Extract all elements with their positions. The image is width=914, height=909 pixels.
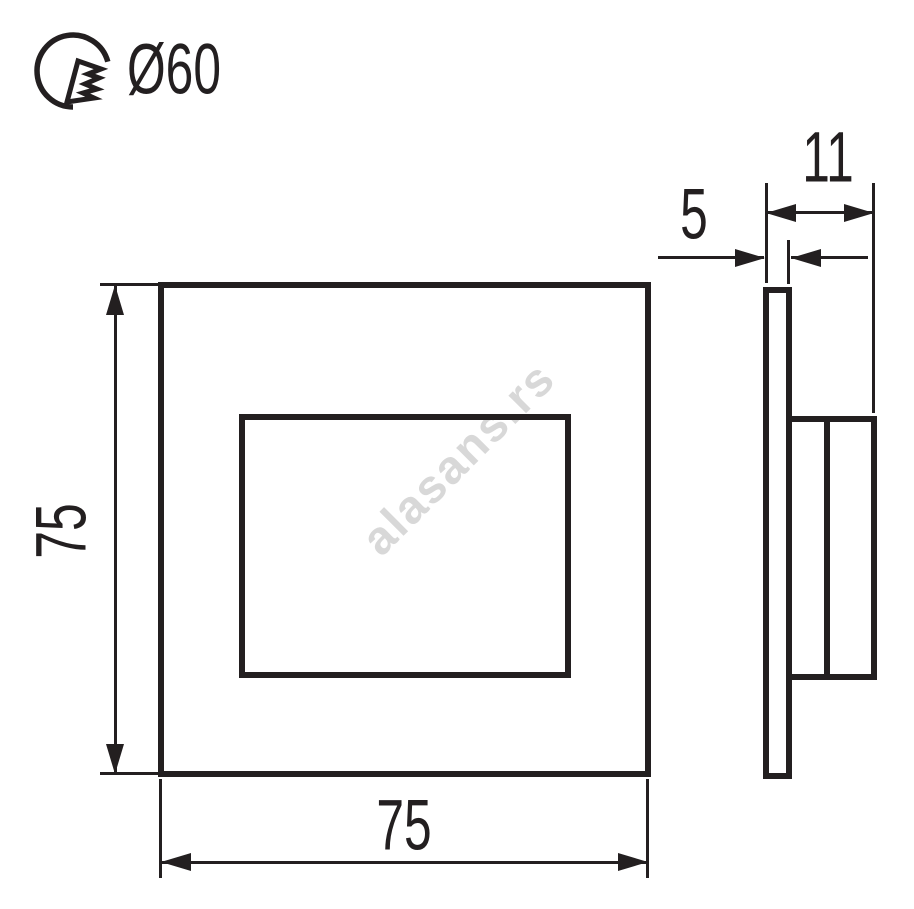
depth-extension-line-left — [765, 183, 768, 283]
front-view-light-window — [239, 414, 571, 678]
hole-saw-icon — [28, 25, 120, 113]
plate-extension-line — [787, 240, 790, 284]
height-arrow-down-icon — [106, 744, 124, 774]
plate-arrow-left-icon — [791, 249, 821, 267]
height-dimension-label: 75 — [27, 503, 98, 558]
width-arrow-left-icon — [161, 853, 191, 871]
cutout-diameter-label: Ø60 — [127, 35, 221, 106]
depth-arrow-left-icon — [766, 204, 796, 222]
side-view-recessed-housing — [792, 416, 877, 680]
hole-saw-teeth — [67, 61, 101, 102]
technical-drawing-canvas: alasans.rs Ø60 75 75 11 5 — [0, 0, 914, 909]
side-view-housing-divider — [824, 422, 830, 674]
height-arrow-up-icon — [106, 285, 124, 315]
side-view-faceplate — [763, 287, 792, 779]
depth-arrow-right-icon — [844, 204, 874, 222]
width-arrow-right-icon — [618, 853, 648, 871]
plate-arrow-right-icon — [735, 249, 765, 267]
width-dimension-label: 75 — [376, 791, 431, 862]
height-dimension-line — [114, 285, 117, 774]
plate-dimension-label: 5 — [680, 180, 708, 251]
depth-dimension-label: 11 — [802, 123, 854, 194]
